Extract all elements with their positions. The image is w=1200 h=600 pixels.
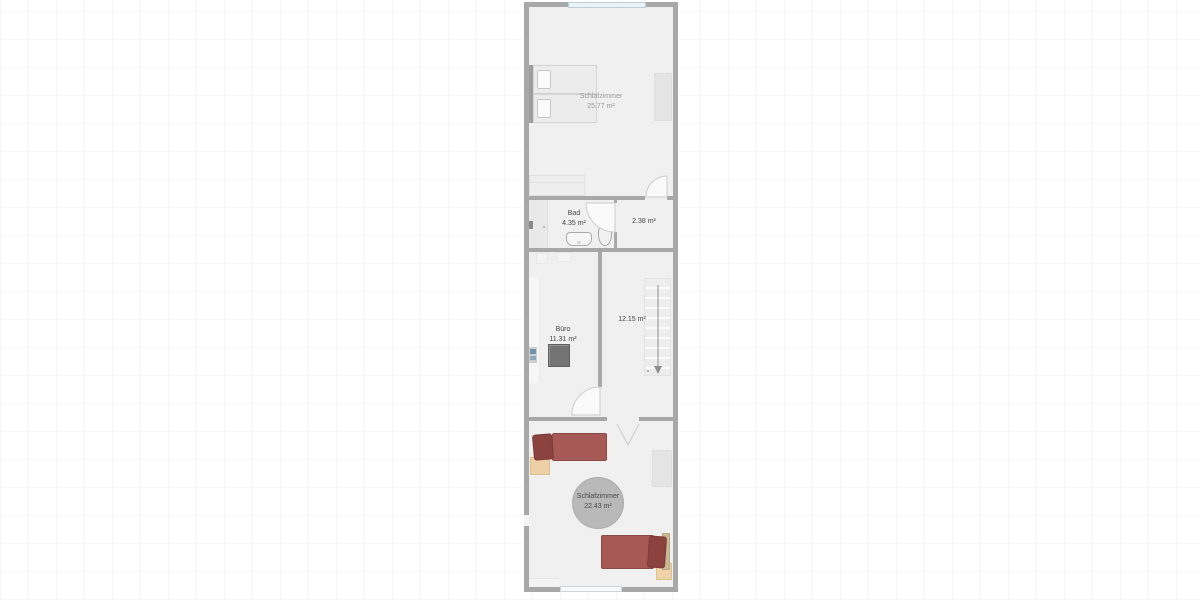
stairs-start-dot xyxy=(647,370,649,372)
door-bedroom-bottom[interactable] xyxy=(617,424,639,445)
floor-plan: Schlafzimmer25.77 m² Bad4.35 m² 2.38 m² … xyxy=(524,0,678,600)
door-office[interactable] xyxy=(572,387,600,415)
door-bath[interactable] xyxy=(586,203,615,232)
canvas: { "rooms": { "bedroom_top": { "name": "S… xyxy=(0,0,1200,600)
door-bedroom-top[interactable] xyxy=(646,176,667,197)
door-overlay xyxy=(524,0,678,600)
stairs-arrow-head-icon xyxy=(654,366,662,374)
